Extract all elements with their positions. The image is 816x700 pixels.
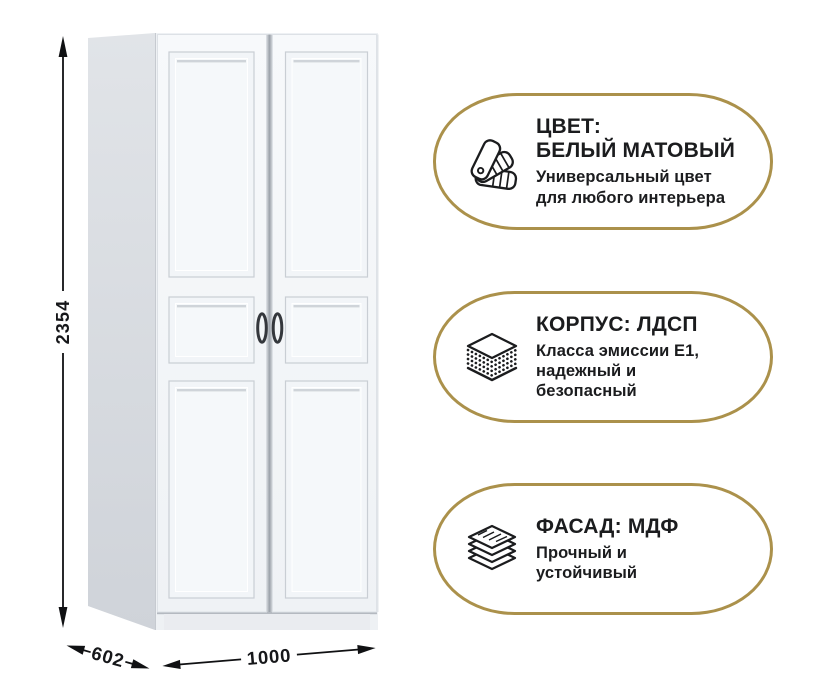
- badge-title: ЦВЕТ: БЕЛЫЙ МАТОВЫЙ: [536, 115, 735, 162]
- door-panel: [286, 52, 368, 277]
- height-dimension-label: 2354: [53, 300, 73, 345]
- badge-title: КОРПУС: ЛДСП: [536, 313, 699, 337]
- feature-badge-color: ЦВЕТ: БЕЛЫЙ МАТОВЫЙ Универсальный цвет д…: [433, 93, 773, 230]
- wardrobe-plinth: [164, 614, 370, 630]
- depth-dimension-label: 602: [89, 642, 127, 671]
- chipboard-layers-icon: [464, 329, 520, 385]
- badge-title: ФАСАД: МДФ: [536, 515, 679, 539]
- door-panel: [169, 381, 254, 598]
- wardrobe-body: [88, 33, 379, 630]
- badge-description: Универсальный цвет для любого интерьера: [536, 167, 735, 207]
- height-dimension: 2354: [53, 36, 73, 628]
- product-card: 2354 602 1000: [0, 0, 816, 700]
- feature-badge-facade: ФАСАД: МДФ Прочный и устойчивый: [433, 483, 773, 615]
- badge-description: Класса эмиссии Е1, надежный и безопасный: [536, 341, 699, 401]
- width-dimension: 1000: [161, 637, 376, 676]
- swatch-fan-icon: [464, 134, 520, 190]
- wardrobe-right-door: [273, 35, 377, 613]
- door-panel: [286, 297, 368, 363]
- door-panel: [169, 297, 254, 363]
- depth-dimension: 602: [64, 635, 152, 678]
- badge-description: Прочный и устойчивый: [536, 543, 679, 583]
- width-dimension-label: 1000: [246, 644, 292, 669]
- door-panel: [286, 381, 368, 598]
- wardrobe-side-panel: [88, 33, 155, 630]
- door-panel: [169, 52, 254, 277]
- feature-badge-body: КОРПУС: ЛДСП Класса эмиссии Е1, надежный…: [433, 291, 773, 423]
- wardrobe-right-edge: [377, 35, 379, 613]
- mdf-stack-icon: [464, 521, 520, 577]
- wardrobe-left-door: [158, 35, 267, 613]
